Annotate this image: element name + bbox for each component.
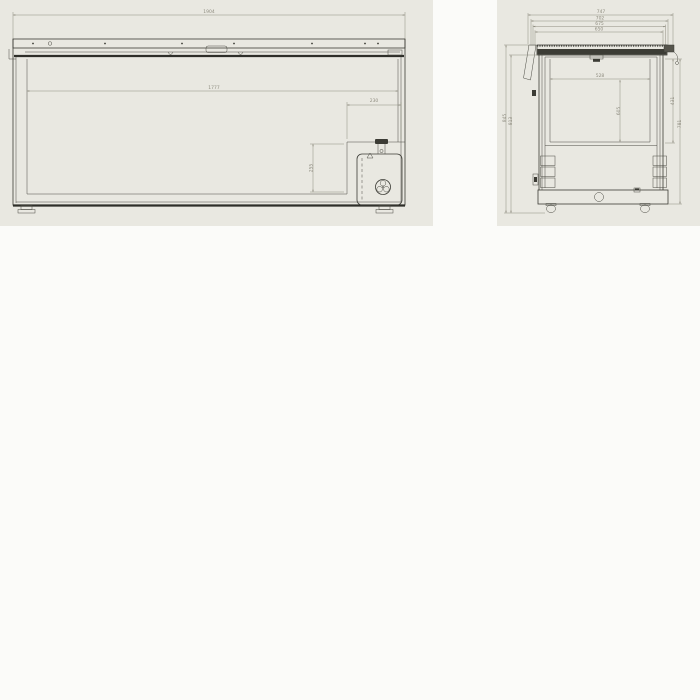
foot-right <box>376 206 393 214</box>
front-feet <box>18 206 393 214</box>
side-dim-height-body-label: 813 <box>508 117 514 126</box>
control-flap <box>524 45 537 80</box>
screw-dot <box>32 43 34 45</box>
technical-drawing-page: 1904 <box>0 0 700 700</box>
side-dim-depth-3-label: 675 <box>595 21 604 27</box>
inner-cavity-walls <box>550 59 650 142</box>
vent-slot <box>541 156 556 166</box>
front-dim-inner-width: 1777 <box>27 85 398 91</box>
side-dim-inner-depth: 605 <box>616 80 622 142</box>
lid-handle <box>590 55 603 62</box>
drain-valve <box>375 139 388 154</box>
side-dim-depth-2-label: 702 <box>596 15 605 21</box>
side-bracket <box>533 174 538 185</box>
front-dim-step-height-label: 255 <box>309 164 315 173</box>
lid-insulation-band <box>537 49 666 55</box>
lid-lock <box>206 46 227 53</box>
base-section <box>538 188 668 213</box>
inner-cavity-bottom <box>545 142 657 146</box>
side-dim-depth-4-label: 650 <box>595 27 604 33</box>
side-dim-inner-width: 528 <box>550 73 650 79</box>
front-dim-inner-width-label: 1777 <box>208 85 220 91</box>
side-dim-depth-4: 650 <box>535 27 663 46</box>
side-view-panel: 747 702 675 650 <box>497 0 700 226</box>
front-dim-overall-width-label: 1904 <box>203 9 215 15</box>
hinge-marks <box>168 52 243 55</box>
front-view-drawing: 1904 <box>0 0 433 226</box>
side-dim-right-upper: 431 <box>665 59 676 143</box>
hinge-pin <box>532 90 536 96</box>
hole-circle <box>48 42 52 46</box>
caster-left <box>546 204 556 213</box>
side-dim-inner-width-label: 528 <box>596 73 605 79</box>
foot-left <box>18 206 35 214</box>
fan-icon <box>376 180 391 195</box>
compartment-step <box>347 142 405 194</box>
side-dim-depth-3: 675 <box>533 21 666 46</box>
compressor-compartment <box>357 139 402 205</box>
side-dim-height-overall-label: 845 <box>502 114 508 123</box>
side-dim-depth-overall-label: 747 <box>597 9 606 15</box>
side-dim-right-upper-label: 431 <box>670 97 676 106</box>
front-dim-overall-width: 1904 <box>13 9 405 39</box>
front-dim-step-width: 230 <box>347 98 401 139</box>
drain-hole <box>595 193 604 202</box>
lid-rail <box>9 39 405 59</box>
front-view-panel: 1904 <box>0 0 433 226</box>
side-dim-height-body: 813 <box>508 55 538 213</box>
side-dim-right-lower-label: 781 <box>677 120 683 129</box>
side-dim-right-lower: 781 <box>665 59 683 204</box>
side-view-drawing: 747 702 675 650 <box>497 0 700 226</box>
lid-right-hinge <box>388 50 402 55</box>
side-dim-height-overall: 845 <box>502 45 545 213</box>
vent-rails <box>541 156 667 188</box>
front-dim-step-height: 255 <box>309 144 345 192</box>
caster-right <box>640 204 650 213</box>
cabinet-body <box>13 39 405 206</box>
front-dim-step-width-label: 230 <box>370 98 379 104</box>
lid-left-step <box>9 49 16 59</box>
side-dim-inner-depth-label: 605 <box>616 107 622 116</box>
